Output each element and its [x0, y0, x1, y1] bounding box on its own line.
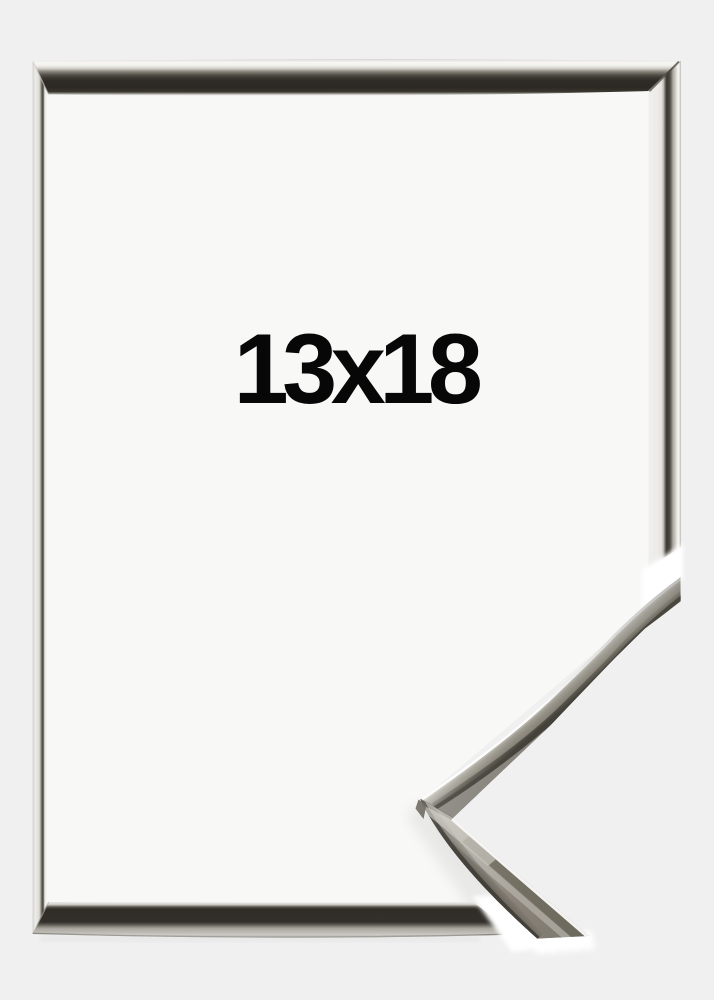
svg-text:13x18: 13x18 [234, 313, 481, 424]
